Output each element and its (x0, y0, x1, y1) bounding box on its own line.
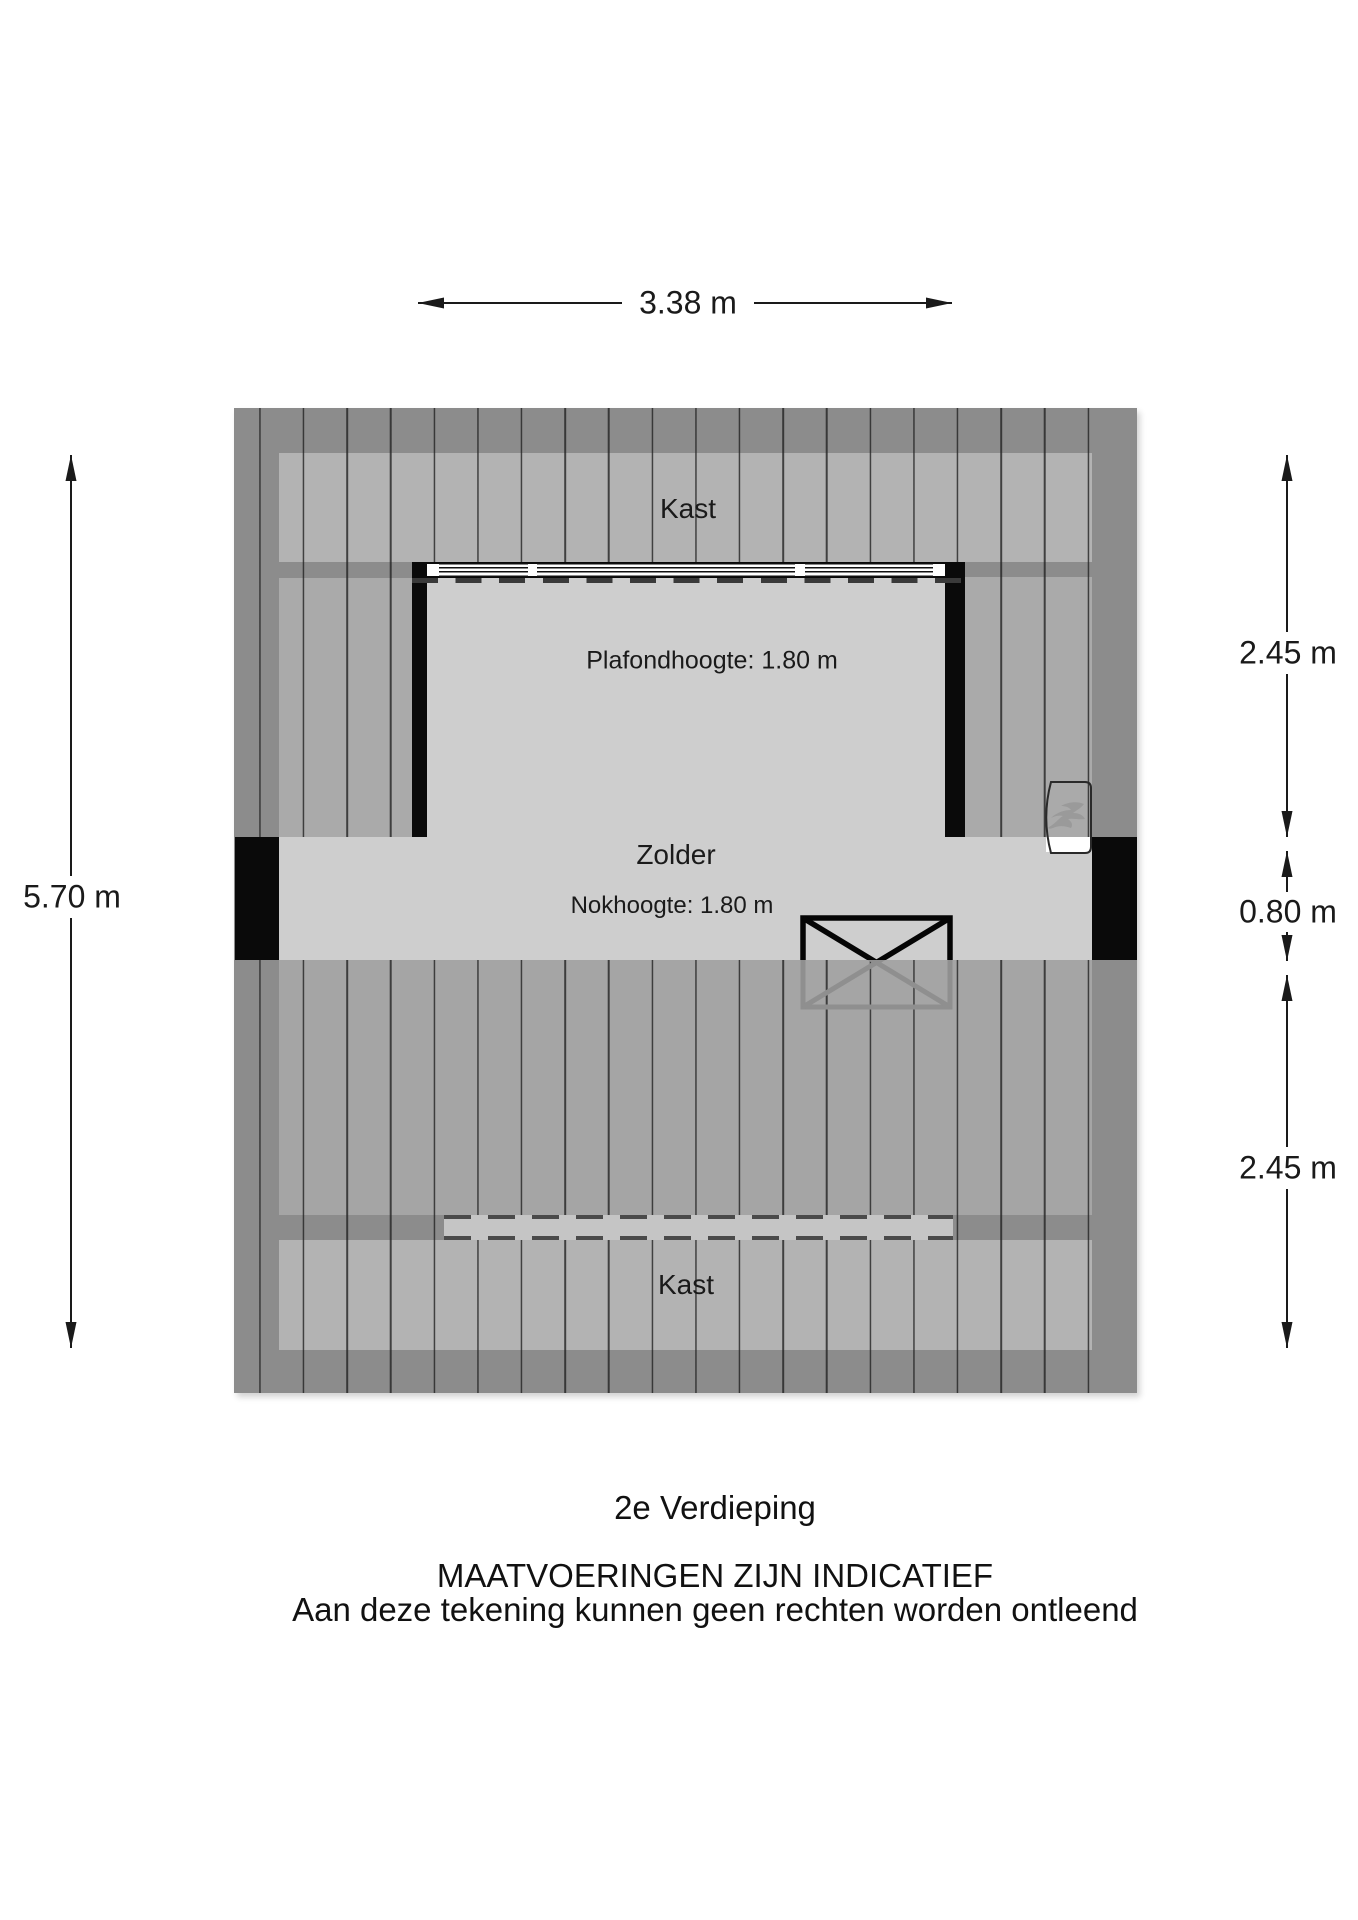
room-wall-right (945, 562, 965, 837)
floor-title: 2e Verdieping (614, 1489, 816, 1527)
rail-post (427, 564, 439, 576)
wall-block-left (235, 837, 279, 960)
dimension-label-width: 3.38 m (633, 285, 743, 322)
dashed-line (444, 1215, 953, 1219)
dimension-label-right-middle: 0.80 m (1233, 894, 1343, 931)
ceiling-height-label: Plafondhoogte: 1.80 m (586, 647, 838, 676)
disclaimer-line-1: MAATVOERINGEN ZIJN INDICATIEF (437, 1557, 993, 1595)
boiler-icon (1035, 780, 1095, 855)
rail-post (795, 564, 805, 576)
rail-post (933, 564, 945, 576)
disclaimer-line-2: Aan deze tekening kunnen geen rechten wo… (292, 1591, 1138, 1629)
room-label-kast-top: Kast (660, 493, 716, 525)
room-label-zolder: Zolder (636, 839, 715, 871)
dimension-label-right-lower: 2.45 m (1233, 1150, 1343, 1187)
flame-icon (1048, 802, 1085, 828)
knee-wall-dashed-band (444, 1215, 953, 1240)
dimension-label-right-upper: 2.45 m (1233, 635, 1343, 672)
room-wall-left (412, 562, 427, 837)
floorplan-page: Kast Plafondhoogte: 1.80 m Zolder Nokhoo… (0, 0, 1358, 1920)
stairwell-opening-icon (800, 915, 953, 1010)
ridge-height-label: Nokhoogte: 1.80 m (571, 892, 774, 920)
wall-block-right (1092, 837, 1137, 960)
sliding-door-panel (439, 563, 528, 577)
sliding-door-rail (412, 562, 965, 578)
room-label-kast-bottom: Kast (658, 1269, 714, 1301)
rail-dashed-line (412, 578, 965, 583)
sliding-door-panel (537, 563, 795, 577)
dashed-line (444, 1236, 953, 1240)
rail-post (528, 564, 537, 576)
attic-room-floor (427, 578, 945, 837)
dimension-label-height-total: 5.70 m (17, 879, 127, 916)
sliding-door-panel (805, 563, 933, 577)
